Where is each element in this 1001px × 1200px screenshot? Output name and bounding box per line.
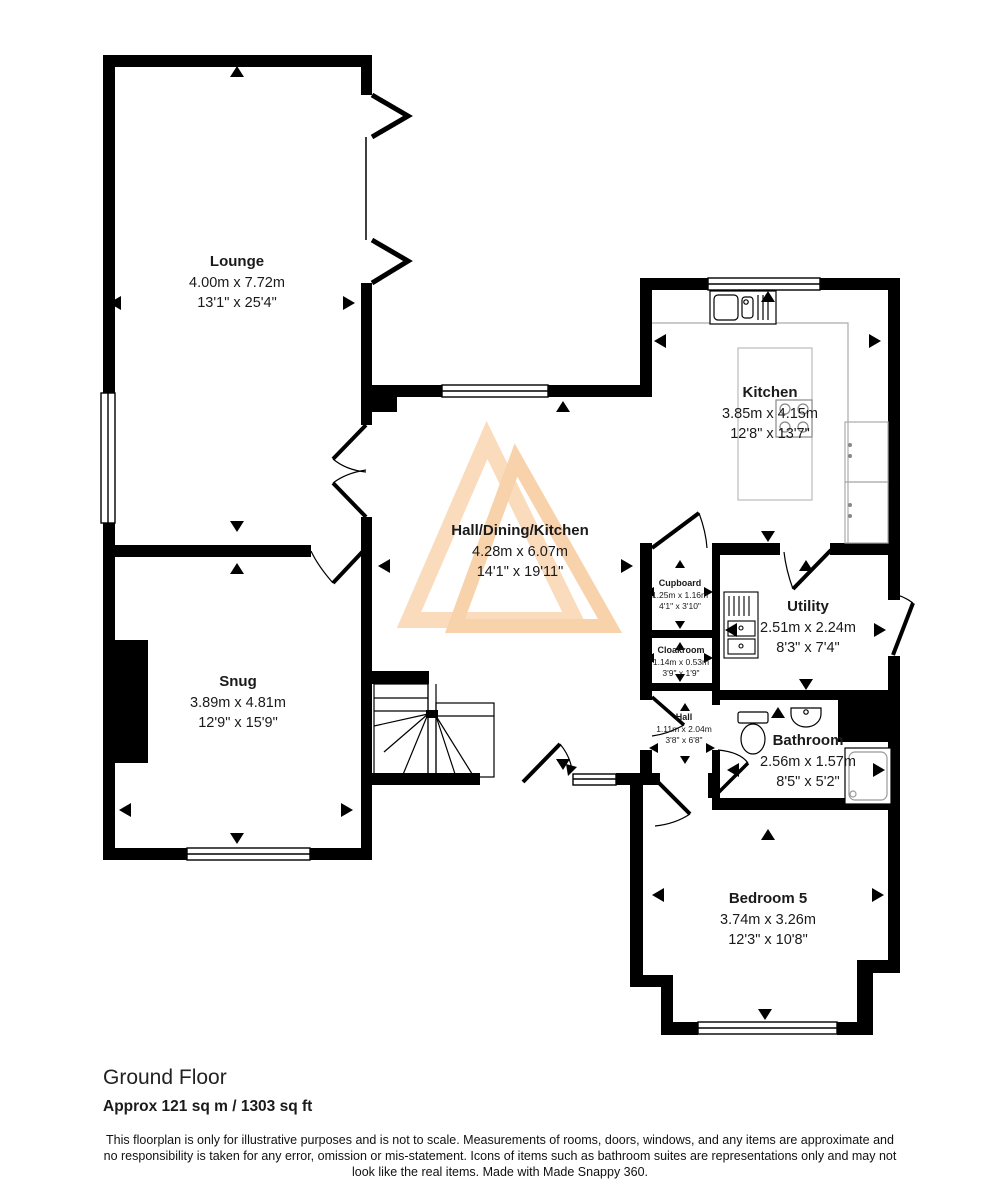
room-label-snug: Snug 3.89m x 4.81m 12'9" x 15'9": [190, 672, 286, 734]
lounge-left-window: [101, 393, 115, 523]
room-name: Kitchen: [722, 383, 818, 404]
utility-exterior-door-icon: [892, 594, 913, 655]
room-label-cupboard: Cupboard 1.25m x 1.16m 4'1" x 3'10": [652, 578, 708, 613]
room-size-imperial: 12'8" x 13'7": [722, 424, 818, 445]
utility-appliance-icon: [724, 592, 758, 658]
disclaimer-text: This floorplan is only for illustrative …: [100, 1132, 900, 1180]
bedroom5-door-icon: [655, 779, 690, 826]
room-size-imperial: 14'1" x 19'11": [451, 562, 589, 583]
room-size-metric: 3.85m x 4.15m: [722, 404, 818, 425]
bedroom5-bay-window: [698, 1022, 837, 1034]
room-size-imperial: 3'8" x 6'8": [656, 735, 712, 747]
room-name: Utility: [760, 597, 856, 618]
room-size-metric: 1.11m x 2.04m: [656, 724, 712, 736]
room-size-imperial: 12'9" x 15'9": [190, 713, 286, 734]
entrance-door-icon: [523, 744, 577, 782]
room-label-cloakroom: Cloakroom 1.14m x 0.53m 3'9" x 1'9": [653, 645, 709, 680]
room-name: Hall: [656, 712, 712, 724]
chimney-breast: [103, 640, 148, 763]
staircase-icon: [372, 671, 494, 777]
room-name: Cloakroom: [653, 645, 709, 657]
room-name: Snug: [190, 672, 286, 693]
floor-summary: Ground Floor Approx 121 sq m / 1303 sq f…: [103, 1066, 312, 1116]
room-size-imperial: 12'3" x 10'8": [720, 930, 816, 951]
room-name: Bedroom 5: [720, 889, 816, 910]
hall-bottom-window: [573, 774, 616, 785]
room-label-kitchen: Kitchen 3.85m x 4.15m 12'8" x 13'7": [722, 383, 818, 445]
floor-title: Ground Floor: [103, 1066, 312, 1090]
room-name: Cupboard: [652, 578, 708, 590]
room-size-imperial: 13'1" x 25'4": [189, 293, 285, 314]
hall-top-window: [442, 385, 548, 397]
room-size-imperial: 8'3" x 7'4": [760, 638, 856, 659]
room-label-bedroom-5: Bedroom 5 3.74m x 3.26m 12'3" x 10'8": [720, 889, 816, 951]
room-label-lounge: Lounge 4.00m x 7.72m 13'1" x 25'4": [189, 252, 285, 314]
room-size-imperial: 4'1" x 3'10": [652, 601, 708, 613]
lounge-bifold-doors-icon: [366, 95, 408, 283]
room-size-metric: 1.25m x 1.16m: [652, 590, 708, 602]
snug-bottom-window: [187, 848, 310, 860]
arrow-up-icon: [230, 66, 244, 77]
arrow-right-icon: [343, 296, 355, 310]
room-name: Hall/Dining/Kitchen: [451, 521, 589, 542]
room-label-hall: Hall 1.11m x 2.04m 3'8" x 6'8": [656, 712, 712, 747]
arrow-down-icon: [230, 521, 244, 532]
lounge-hall-double-door-icon: [333, 425, 366, 517]
room-size-imperial: 3'9" x 1'9": [653, 668, 709, 680]
room-size-metric: 2.51m x 2.24m: [760, 618, 856, 639]
room-name: Bathroom: [760, 731, 856, 752]
floor-area: Approx 121 sq m / 1303 sq ft: [103, 1098, 312, 1116]
kitchen-appliances-icon: [845, 422, 888, 543]
kitchen-top-window: [708, 278, 820, 290]
room-label-bathroom: Bathroom 2.56m x 1.57m 8'5" x 5'2": [760, 731, 856, 793]
room-size-metric: 1.14m x 0.53m: [653, 657, 709, 669]
room-label-hall-dining-kitchen: Hall/Dining/Kitchen 4.28m x 6.07m 14'1" …: [451, 521, 589, 583]
basin-icon: [791, 708, 821, 727]
snug-door-icon: [311, 548, 366, 583]
doors: [311, 95, 913, 826]
room-name: Lounge: [189, 252, 285, 273]
room-size-metric: 3.89m x 4.81m: [190, 693, 286, 714]
room-size-metric: 4.28m x 6.07m: [451, 542, 589, 563]
room-size-metric: 4.00m x 7.72m: [189, 273, 285, 294]
cupboard-door-icon: [652, 513, 707, 548]
floorplan-canvas: Lounge 4.00m x 7.72m 13'1" x 25'4" Kitch…: [0, 0, 1001, 1200]
room-size-metric: 2.56m x 1.57m: [760, 752, 856, 773]
room-label-utility: Utility 2.51m x 2.24m 8'3" x 7'4": [760, 597, 856, 659]
room-size-imperial: 8'5" x 5'2": [760, 772, 856, 793]
room-size-metric: 3.74m x 3.26m: [720, 910, 816, 931]
